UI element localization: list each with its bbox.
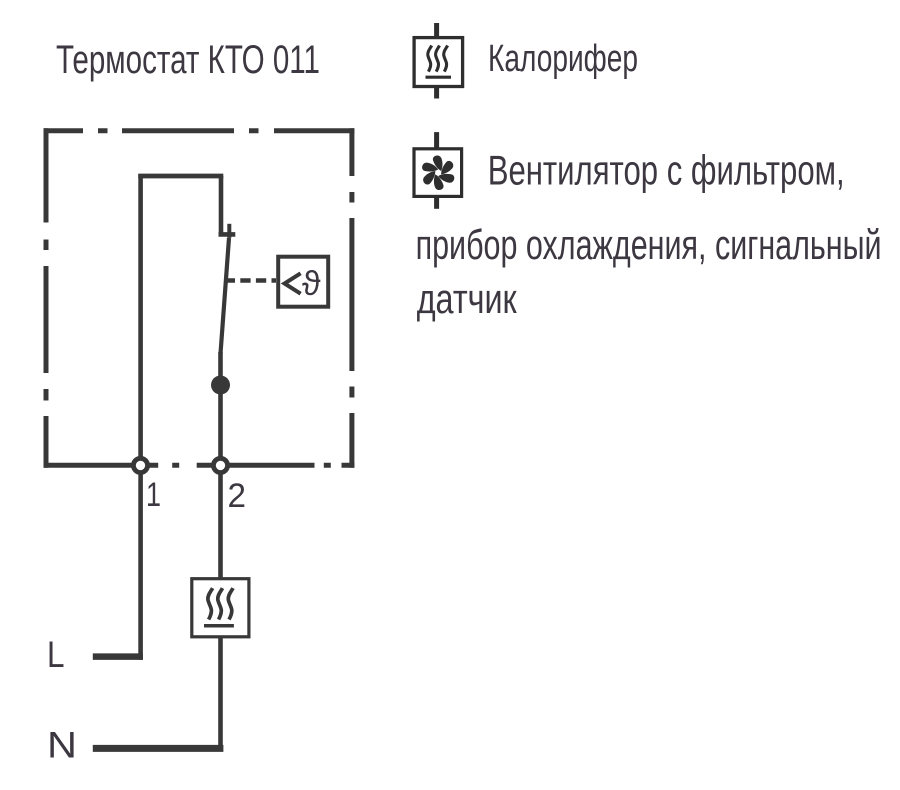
svg-text:прибор охлаждения, сигнальный: прибор охлаждения, сигнальный [416, 221, 882, 268]
svg-text:датчик: датчик [417, 275, 517, 322]
svg-text:Калорифер: Калорифер [488, 38, 638, 80]
svg-text:2: 2 [228, 477, 247, 515]
svg-text:Термостат КТО 011: Термостат КТО 011 [56, 38, 320, 82]
svg-text:N: N [47, 725, 77, 766]
svg-text:ϑ: ϑ [302, 265, 321, 303]
svg-text:1: 1 [146, 476, 161, 514]
svg-text:Вентилятор с фильтром,: Вентилятор с фильтром, [488, 147, 845, 194]
svg-text:L: L [47, 634, 65, 675]
